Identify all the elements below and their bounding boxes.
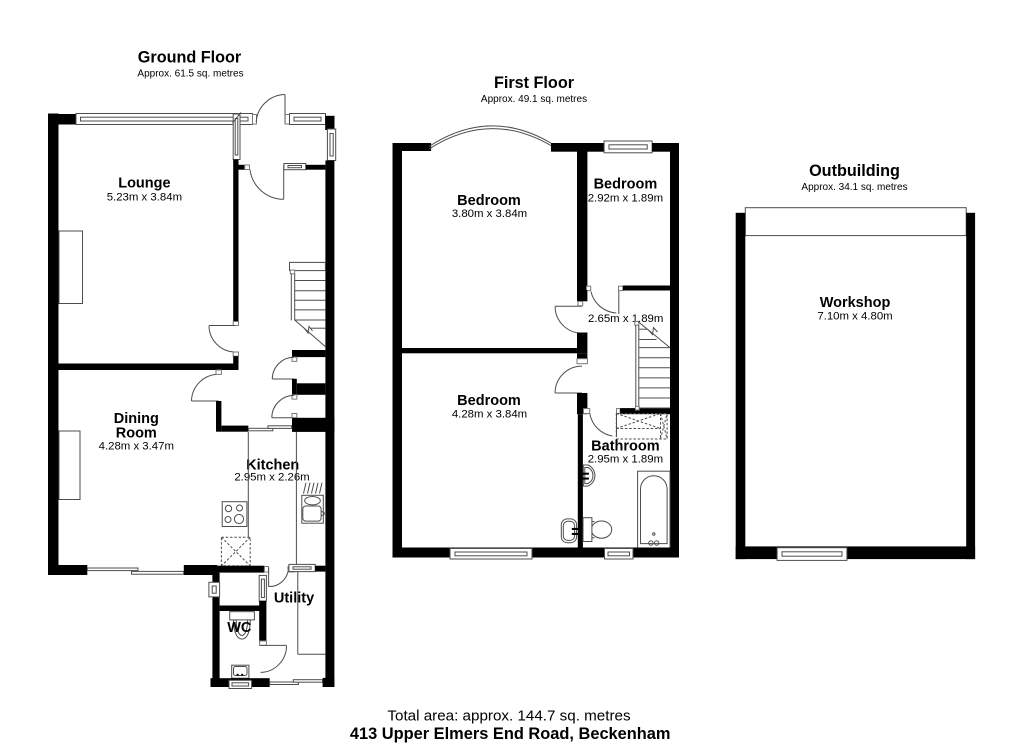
- svg-text:Utility: Utility: [274, 590, 314, 606]
- svg-text:413 Upper Elmers End Road, Bec: 413 Upper Elmers End Road, Beckenham: [350, 725, 671, 743]
- svg-text:Room: Room: [116, 426, 157, 442]
- svg-text:First Floor: First Floor: [494, 74, 575, 92]
- svg-text:Approx. 61.5 sq. metres: Approx. 61.5 sq. metres: [137, 68, 243, 79]
- svg-text:3.80m x 3.84m: 3.80m x 3.84m: [452, 208, 527, 220]
- svg-text:Bedroom: Bedroom: [457, 193, 521, 209]
- svg-text:Dining: Dining: [114, 411, 159, 427]
- svg-text:Total area: approx. 144.7 sq.: Total area: approx. 144.7 sq. metres: [387, 708, 631, 725]
- svg-text:Ground Floor: Ground Floor: [138, 48, 242, 66]
- svg-text:7.10m x 4.80m: 7.10m x 4.80m: [817, 311, 892, 323]
- svg-text:Workshop: Workshop: [820, 295, 891, 311]
- svg-text:WC: WC: [227, 620, 252, 636]
- svg-text:Bathroom: Bathroom: [591, 439, 659, 455]
- svg-text:Bedroom: Bedroom: [594, 177, 658, 193]
- svg-text:4.28m x 3.84m: 4.28m x 3.84m: [452, 409, 527, 421]
- svg-text:Lounge: Lounge: [118, 175, 170, 191]
- svg-text:Bedroom: Bedroom: [457, 393, 521, 409]
- svg-text:Approx. 49.1 sq. metres: Approx. 49.1 sq. metres: [481, 94, 587, 105]
- svg-text:2.65m x 1.89m: 2.65m x 1.89m: [588, 313, 663, 325]
- svg-text:2.95m x 1.89m: 2.95m x 1.89m: [588, 454, 663, 466]
- svg-text:2.92m x 1.89m: 2.92m x 1.89m: [588, 192, 663, 204]
- svg-text:4.28m x 3.47m: 4.28m x 3.47m: [99, 440, 174, 452]
- svg-text:2.95m x 2.26m: 2.95m x 2.26m: [234, 471, 309, 483]
- svg-text:Approx. 34.1 sq. metres: Approx. 34.1 sq. metres: [801, 182, 907, 193]
- svg-text:Outbuilding: Outbuilding: [809, 162, 900, 180]
- svg-text:5.23m x 3.84m: 5.23m x 3.84m: [107, 192, 182, 204]
